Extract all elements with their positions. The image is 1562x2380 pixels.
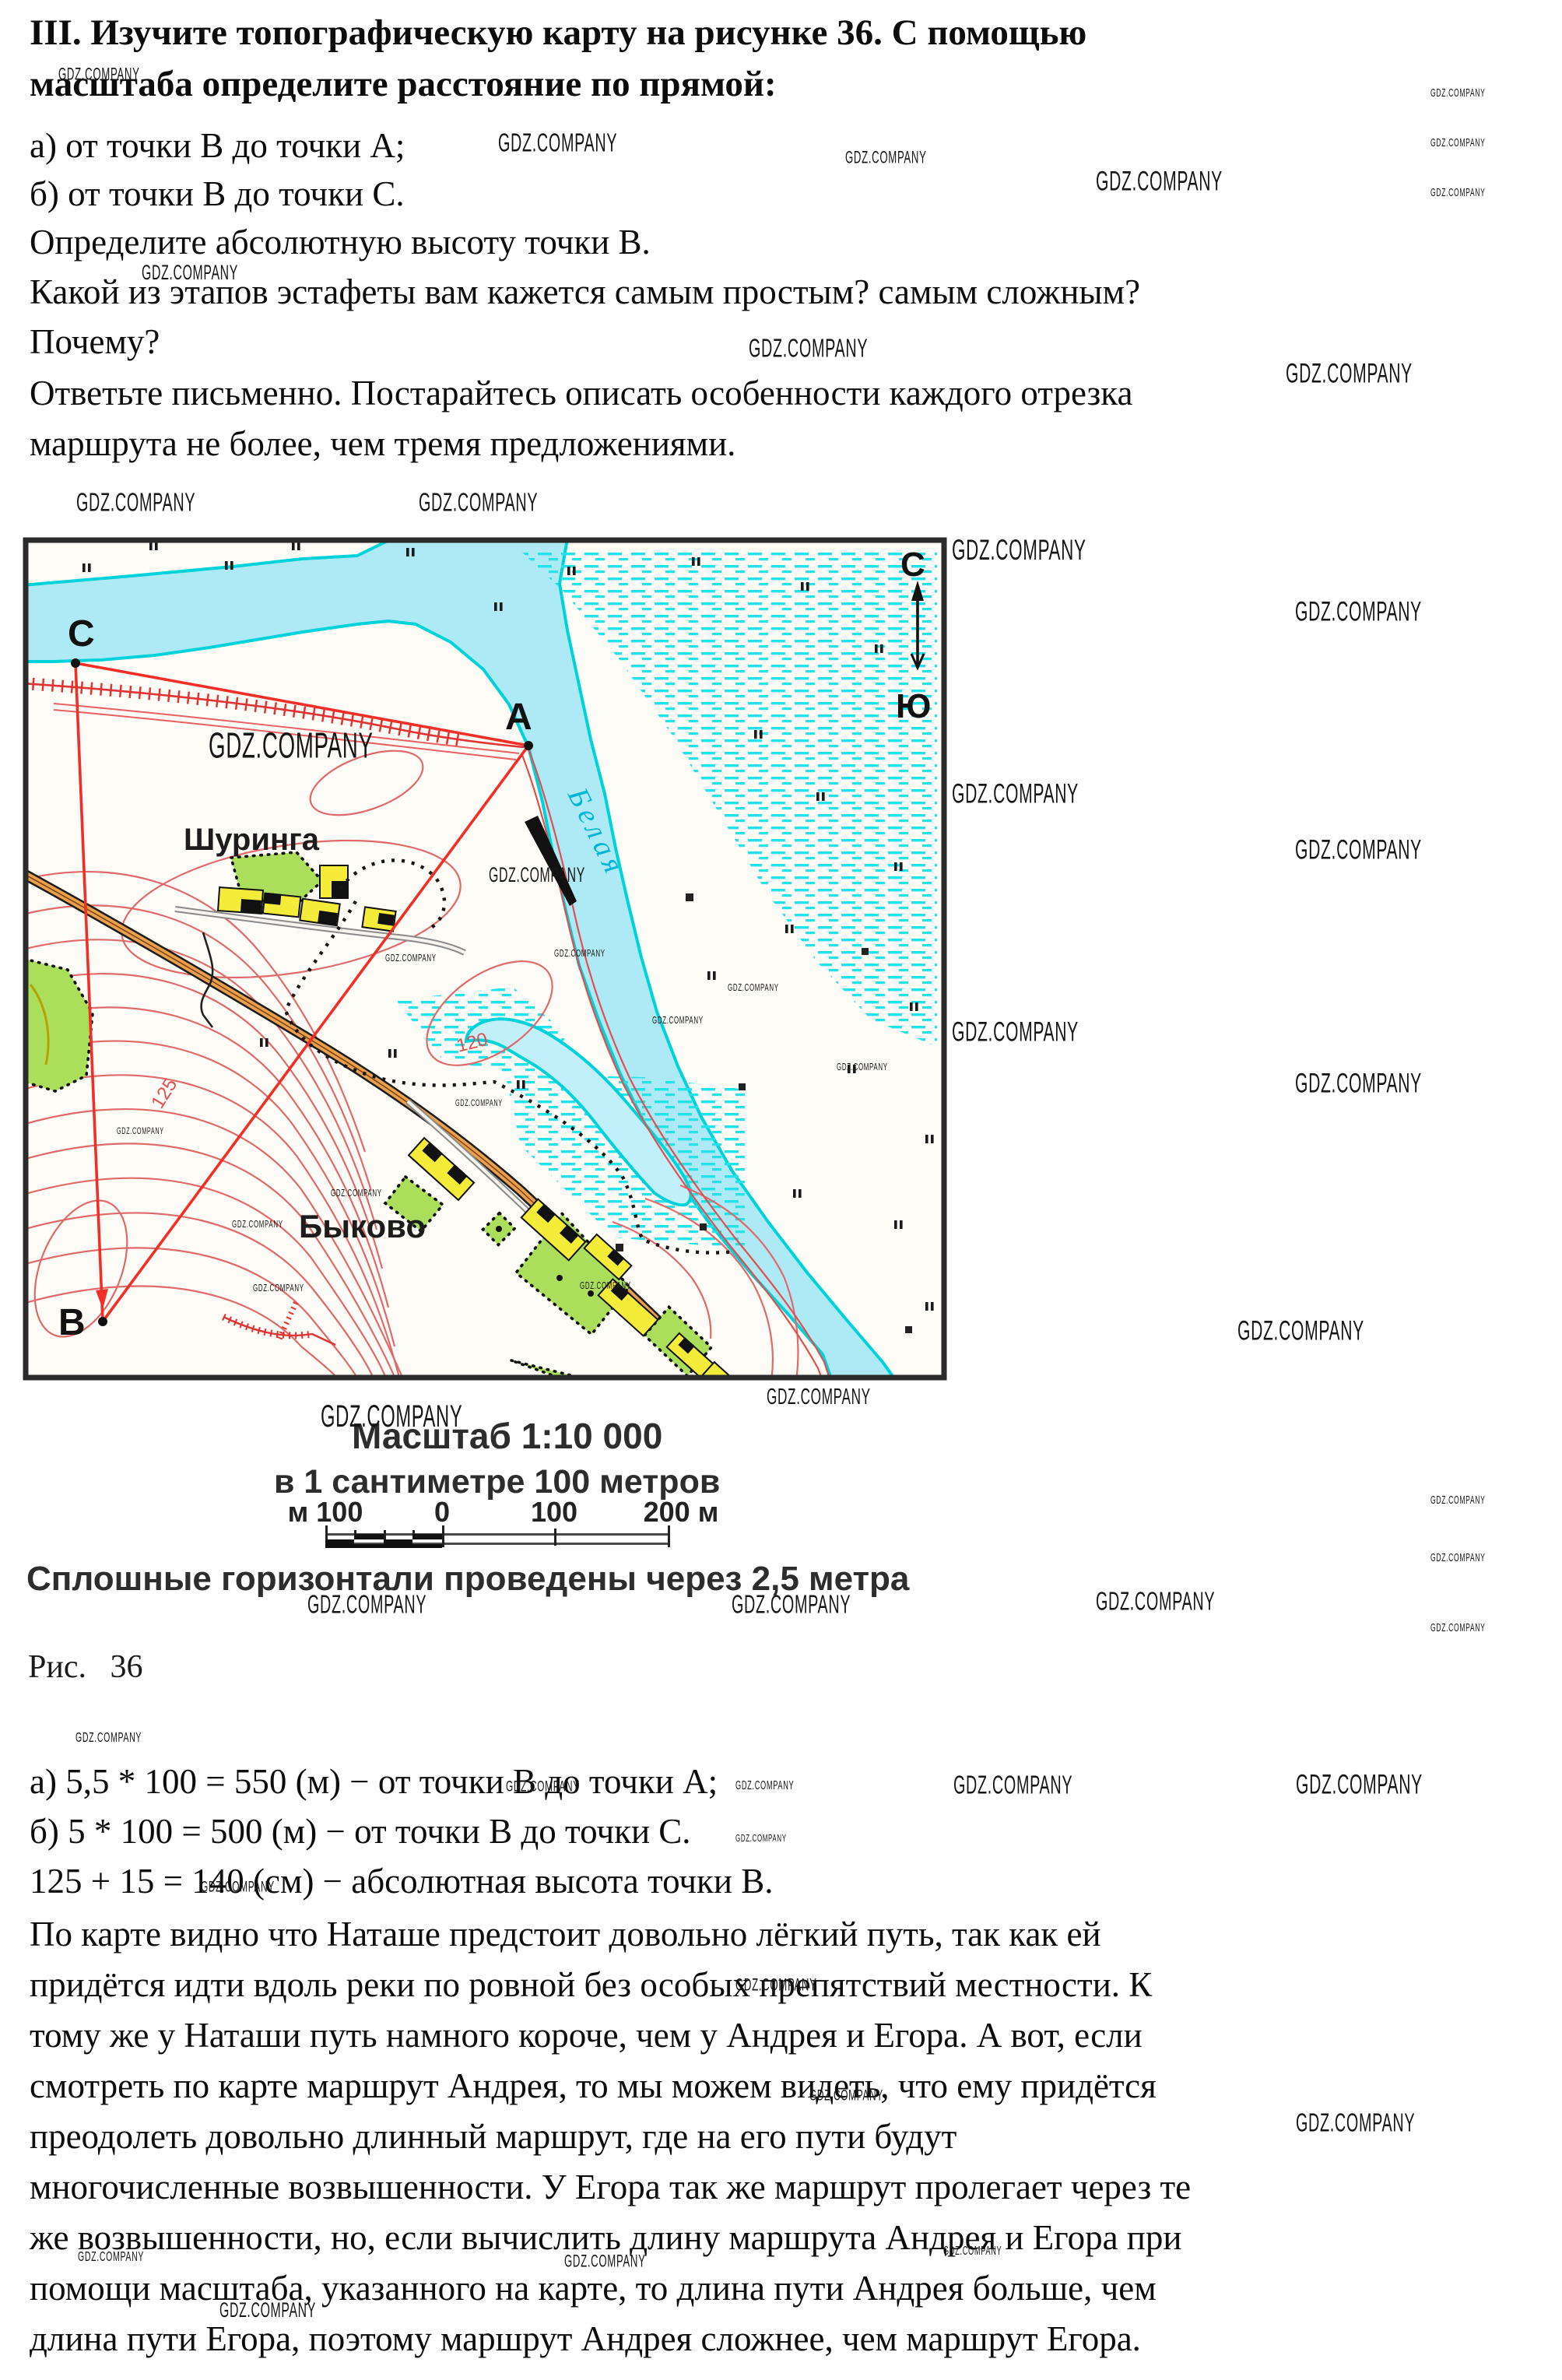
watermark: GDZ.COMPANY bbox=[845, 149, 927, 167]
watermark: GDZ.COMPANY bbox=[331, 1188, 382, 1198]
watermark: GDZ.COMPANY bbox=[943, 2245, 1002, 2256]
watermark: GDZ.COMPANY bbox=[209, 728, 374, 763]
answer-paragraph-line: помощи масштаба, указанного на карте, то… bbox=[30, 2267, 1157, 2309]
watermark: GDZ.COMPANY bbox=[1430, 1622, 1486, 1633]
task-line-1: III. Изучите топографическую карту на ри… bbox=[30, 11, 1086, 54]
watermark: GDZ.COMPANY bbox=[732, 1592, 851, 1618]
answer-paragraph-line: тому же у Наташи путь намного короче, че… bbox=[30, 2014, 1143, 2056]
point-a-dot bbox=[524, 741, 533, 750]
answer-paragraph-line: многочисленные возвышенности. У Егора та… bbox=[30, 2166, 1191, 2208]
figure-caption: Рис. 36 bbox=[28, 1648, 142, 1686]
point-a-label: A bbox=[505, 697, 532, 738]
answer-paragraph-line: По карте видно что Наташе предстоит дово… bbox=[30, 1913, 1101, 1955]
watermark: GDZ.COMPANY bbox=[498, 131, 617, 156]
point-c-label: С bbox=[68, 613, 95, 655]
answer-line-height: 125 + 15 = 140 (см) − абсолютная высота … bbox=[30, 1860, 774, 1902]
watermark: GDZ.COMPANY bbox=[735, 1833, 787, 1843]
scale-bar-label-left: м 100 bbox=[279, 1496, 372, 1529]
point-c-dot bbox=[71, 658, 80, 668]
task-line-5: Определите абсолютную высоту точки В. bbox=[30, 221, 651, 263]
watermark: GDZ.COMPANY bbox=[1286, 360, 1413, 387]
watermark: GDZ.COMPANY bbox=[385, 953, 437, 963]
watermark: GDZ.COMPANY bbox=[1237, 1317, 1364, 1344]
watermark: GDZ.COMPANY bbox=[307, 1592, 426, 1618]
task-line-9: маршрута не более, чем тремя предложения… bbox=[30, 423, 735, 465]
watermark: GDZ.COMPANY bbox=[952, 1018, 1079, 1045]
watermark: GDZ.COMPANY bbox=[219, 2301, 316, 2321]
watermark: GDZ.COMPANY bbox=[1430, 187, 1486, 198]
watermark: GDZ.COMPANY bbox=[142, 263, 238, 283]
watermark: GDZ.COMPANY bbox=[837, 1062, 888, 1072]
task-line-2: масштаба определите расстояние по прямой… bbox=[30, 62, 777, 106]
watermark: GDZ.COMPANY bbox=[749, 336, 868, 362]
watermark: GDZ.COMPANY bbox=[735, 1779, 794, 1791]
watermark: GDZ.COMPANY bbox=[58, 66, 140, 83]
watermark: GDZ.COMPANY bbox=[652, 1015, 704, 1025]
watermark: GDZ.COMPANY bbox=[564, 2253, 646, 2270]
watermark: GDZ.COMPANY bbox=[117, 1127, 164, 1136]
village-bykovo-label: Быково bbox=[299, 1208, 426, 1244]
watermark: GDZ.COMPANY bbox=[580, 1280, 631, 1290]
scale-bar-label-200: 200 м bbox=[623, 1496, 739, 1529]
point-b-dot bbox=[98, 1317, 107, 1326]
watermark: GDZ.COMPANY bbox=[419, 490, 538, 516]
answer-line-b: б) 5 * 100 = 500 (м) − от точки В до точ… bbox=[30, 1810, 691, 1852]
watermark: GDZ.COMPANY bbox=[506, 1778, 580, 1794]
watermark: GDZ.COMPANY bbox=[767, 1385, 871, 1408]
task-line-8: Ответьте письменно. Постарайтесь описать… bbox=[30, 372, 1132, 414]
watermark: GDZ.COMPANY bbox=[76, 490, 195, 516]
watermark: GDZ.COMPANY bbox=[1096, 1589, 1215, 1615]
north-label: С bbox=[900, 546, 925, 584]
answer-line-a: а) 5,5 * 100 = 550 (м) − от точки В до т… bbox=[30, 1760, 718, 1803]
watermark: GDZ.COMPANY bbox=[728, 982, 779, 992]
topographic-map: С A В Шуринга Быково Белая 120 125 С Ю bbox=[23, 537, 947, 1381]
watermark: GDZ.COMPANY bbox=[1430, 1552, 1486, 1563]
scanned-textbook-page: III. Изучите топографическую карту на ри… bbox=[0, 0, 1562, 2380]
answer-paragraph-line: придётся идти вдоль реки по ровной без о… bbox=[30, 1964, 1152, 2006]
scale-bar-label-100: 100 bbox=[523, 1496, 585, 1529]
watermark: GDZ.COMPANY bbox=[253, 1283, 304, 1293]
watermark: GDZ.COMPANY bbox=[554, 948, 605, 958]
scale-bar: м 100 0 100 200 м bbox=[319, 1496, 693, 1561]
watermark: GDZ.COMPANY bbox=[1296, 2111, 1415, 2136]
answer-paragraph-line: преодолеть довольно длинный маршрут, где… bbox=[30, 2115, 957, 2157]
watermark: GDZ.COMPANY bbox=[952, 535, 1086, 564]
watermark: GDZ.COMPANY bbox=[232, 1219, 283, 1229]
watermark: GDZ.COMPANY bbox=[201, 1879, 275, 1894]
watermark: GDZ.COMPANY bbox=[1296, 1771, 1423, 1798]
watermark: GDZ.COMPANY bbox=[735, 1977, 817, 1994]
watermark: GDZ.COMPANY bbox=[1430, 87, 1486, 98]
answer-paragraph-line: длина пути Егора, поэтому маршрут Андрея… bbox=[30, 2318, 1141, 2360]
watermark: GDZ.COMPANY bbox=[1430, 1494, 1486, 1505]
watermark: GDZ.COMPANY bbox=[952, 780, 1079, 807]
task-line-7: Почему? bbox=[30, 321, 160, 363]
watermark: GDZ.COMPANY bbox=[953, 1773, 1072, 1799]
watermark: GDZ.COMPANY bbox=[809, 2087, 883, 2103]
watermark: GDZ.COMPANY bbox=[78, 2251, 144, 2265]
watermark: GDZ.COMPANY bbox=[1430, 137, 1486, 148]
watermark: GDZ.COMPANY bbox=[455, 1099, 503, 1108]
watermark: GDZ.COMPANY bbox=[75, 1732, 142, 1746]
watermark: GDZ.COMPANY bbox=[1295, 1069, 1422, 1097]
topographic-map-figure: С A В Шуринга Быково Белая 120 125 С Ю bbox=[23, 537, 947, 1381]
watermark: GDZ.COMPANY bbox=[1295, 598, 1422, 625]
south-label: Ю bbox=[896, 687, 931, 725]
watermark: GDZ.COMPANY bbox=[1096, 167, 1223, 195]
task-line-3: а) от точки В до точки А; bbox=[30, 125, 405, 167]
task-line-4: б) от точки В до точки С. bbox=[30, 173, 405, 215]
watermark: GDZ.COMPANY bbox=[489, 865, 585, 886]
scale-bar-label-zero: 0 bbox=[426, 1496, 458, 1529]
watermark: GDZ.COMPANY bbox=[1295, 836, 1422, 863]
village-shuringa-label: Шуринга bbox=[184, 823, 320, 857]
answer-paragraph-line: смотреть по карте маршрут Андрея, то мы … bbox=[30, 2065, 1157, 2107]
point-b-label: В bbox=[58, 1302, 86, 1343]
watermark: GDZ.COMPANY bbox=[321, 1401, 462, 1432]
